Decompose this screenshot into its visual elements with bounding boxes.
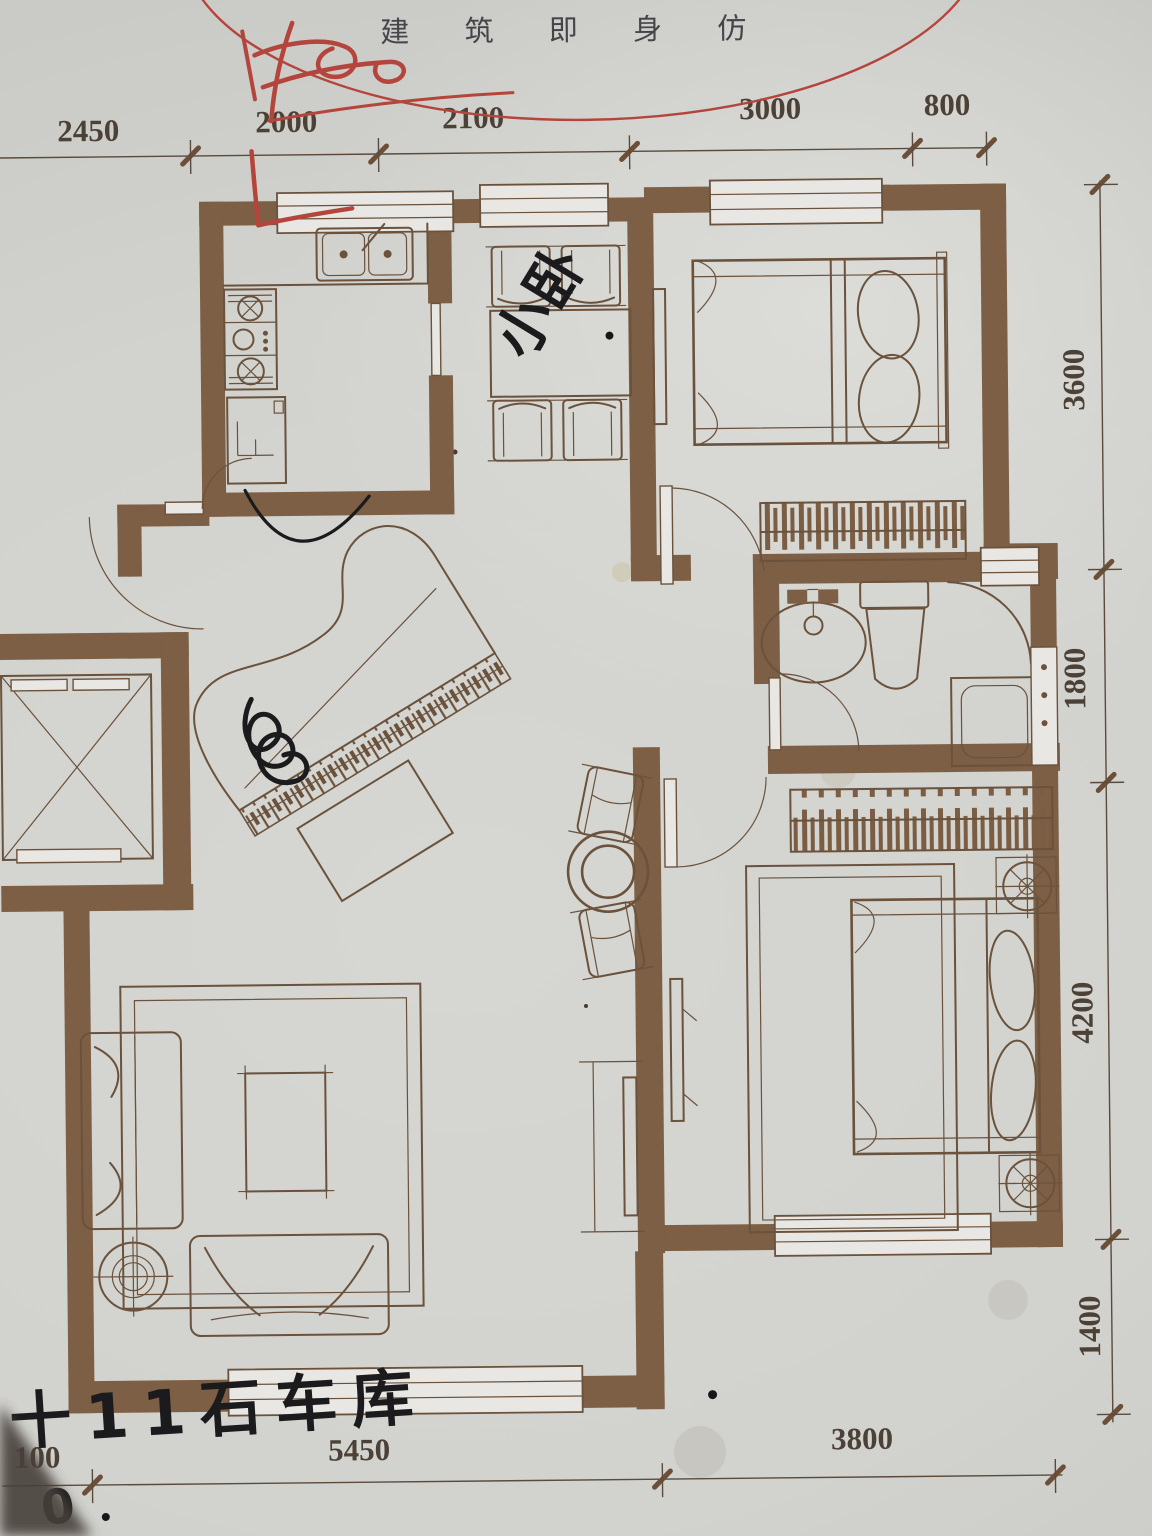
master-tv xyxy=(670,979,697,1121)
dimension-chain-top: 2450 2000 2100 3000 800 xyxy=(0,87,995,177)
sofa-bottom xyxy=(190,1234,389,1336)
dim-label-bottom-3800: 3800 xyxy=(831,1421,893,1457)
dining-chair xyxy=(487,400,558,461)
elevator xyxy=(1,674,153,863)
floor-plan-svg: 建 筑 即 身 仿 xyxy=(0,0,1152,1536)
ink-scribble-piano xyxy=(245,699,307,783)
dim-label-top-2100: 2100 xyxy=(442,100,504,136)
bedroom1-wardrobe xyxy=(760,501,966,561)
coffee-table xyxy=(237,1065,334,1200)
hallway-tv xyxy=(579,1061,645,1232)
grand-piano xyxy=(148,508,564,924)
window-dining xyxy=(480,184,608,227)
bedroom1-tv xyxy=(653,289,666,424)
shower-door-arc xyxy=(948,581,1031,664)
bedroom1-bed xyxy=(693,252,949,451)
master-bed xyxy=(851,898,1041,1154)
window-bathroom xyxy=(981,547,1039,586)
dim-label-right-1800: 1800 xyxy=(1057,648,1093,710)
dining-chair xyxy=(557,399,628,460)
kitchen-stove xyxy=(224,289,277,390)
master-door xyxy=(664,777,767,867)
page-title: 建 筑 即 身 仿 xyxy=(380,12,770,49)
master-wardrobe xyxy=(790,787,1053,852)
fridge xyxy=(227,397,286,484)
dim-label-top-800: 800 xyxy=(924,87,971,122)
floor-plan-photo: 建 筑 即 身 仿 xyxy=(0,0,1152,1536)
dim-label-right-1400: 1400 xyxy=(1072,1295,1108,1357)
toilet xyxy=(860,581,929,689)
window-bedroom1 xyxy=(710,179,882,225)
dim-label-right-4200: 4200 xyxy=(1064,982,1100,1044)
floor-lamp xyxy=(93,1236,174,1317)
kitchen-door-leaf xyxy=(431,303,441,375)
dimension-chain-right: 3600 1800 4200 1400 xyxy=(1052,176,1131,1423)
dim-label-top-2000: 2000 xyxy=(255,104,317,140)
bathroom-door xyxy=(769,673,859,752)
water-heater xyxy=(1031,647,1058,765)
dim-label-top-2450: 2450 xyxy=(57,113,119,149)
sofa-left xyxy=(81,1032,183,1229)
dim-label-top-3000: 3000 xyxy=(739,91,801,127)
dim-label-right-3600: 3600 xyxy=(1056,349,1092,411)
